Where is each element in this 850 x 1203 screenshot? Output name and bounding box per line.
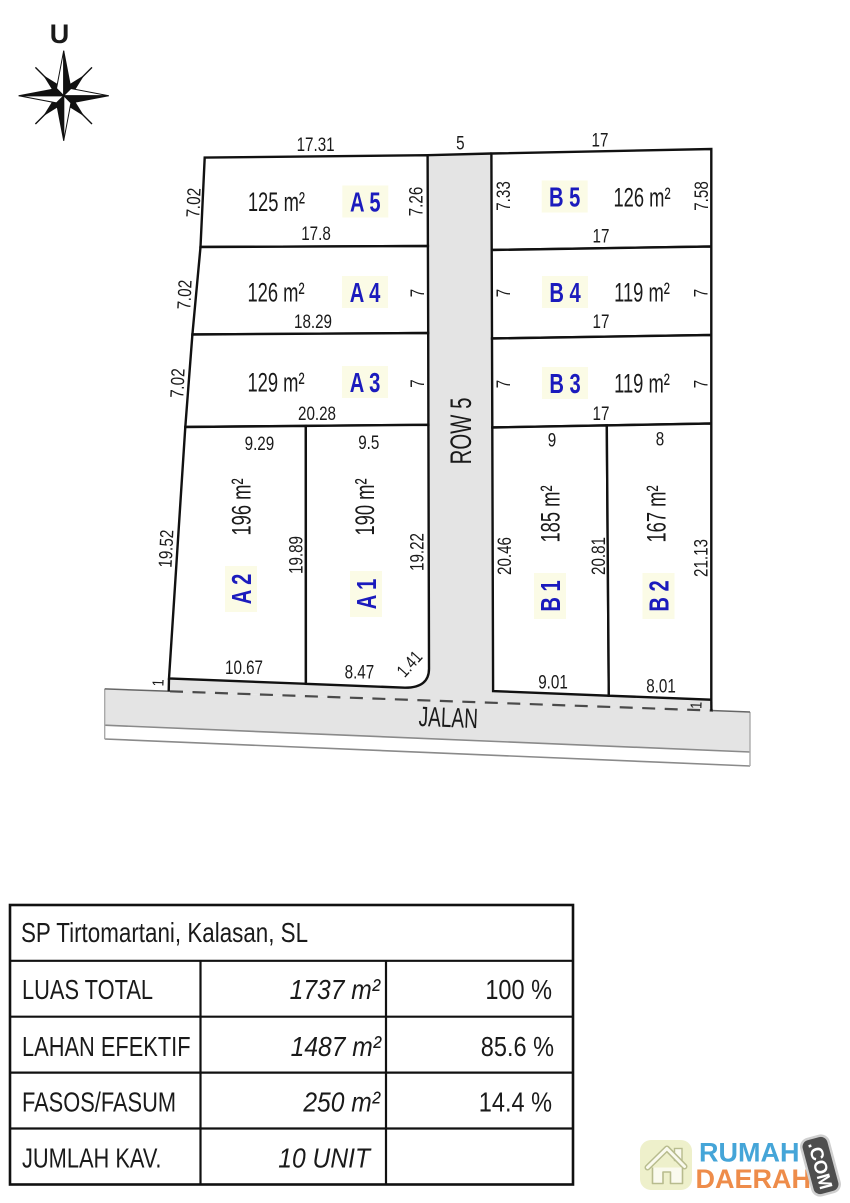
svg-text:19.52: 19.52 xyxy=(154,529,178,568)
svg-text:8.47: 8.47 xyxy=(345,661,375,683)
svg-text:7.02: 7.02 xyxy=(173,279,196,310)
svg-text:20.81: 20.81 xyxy=(588,537,610,575)
svg-text:125 m²: 125 m² xyxy=(248,186,305,216)
svg-text:7: 7 xyxy=(690,289,712,297)
svg-text:1: 1 xyxy=(150,679,168,687)
svg-text:RUMAH: RUMAH xyxy=(699,1138,800,1168)
svg-text:10 UNIT: 10 UNIT xyxy=(278,1142,371,1174)
svg-text:JUMLAH KAV.: JUMLAH KAV. xyxy=(22,1143,162,1174)
svg-text:A 5: A 5 xyxy=(350,187,381,218)
svg-text:7.26: 7.26 xyxy=(405,187,427,217)
svg-text:14.4 %: 14.4 % xyxy=(479,1088,552,1118)
svg-text:A 1: A 1 xyxy=(352,579,383,610)
svg-text:7.02: 7.02 xyxy=(182,187,205,218)
svg-text:B 3: B 3 xyxy=(549,369,580,400)
svg-text:7.02: 7.02 xyxy=(166,368,189,399)
svg-text:7: 7 xyxy=(492,289,514,297)
svg-text:9.5: 9.5 xyxy=(358,431,379,453)
svg-text:10.67: 10.67 xyxy=(225,656,263,678)
svg-text:17: 17 xyxy=(593,402,610,424)
svg-text:7: 7 xyxy=(492,380,514,388)
svg-text:129 m²: 129 m² xyxy=(247,367,304,397)
svg-text:20.28: 20.28 xyxy=(298,402,336,424)
svg-text:LAHAN EFEKTIF: LAHAN EFEKTIF xyxy=(22,1031,191,1062)
svg-text:185 m²: 185 m² xyxy=(535,485,565,542)
svg-text:119 m²: 119 m² xyxy=(614,277,670,307)
svg-text:SP Tirtomartani, Kalasan, SL: SP Tirtomartani, Kalasan, SL xyxy=(21,918,308,949)
svg-text:DAERAH: DAERAH xyxy=(696,1164,812,1194)
svg-text:A 3: A 3 xyxy=(350,368,381,399)
svg-text:1487 m²: 1487 m² xyxy=(291,1031,382,1063)
svg-text:7.33: 7.33 xyxy=(492,181,514,211)
svg-text:A 4: A 4 xyxy=(350,278,381,309)
svg-text:21.13: 21.13 xyxy=(690,539,712,577)
svg-text:B 1: B 1 xyxy=(536,580,567,611)
svg-text:190 m²: 190 m² xyxy=(350,478,380,535)
svg-text:17: 17 xyxy=(593,310,610,332)
svg-text:196 m²: 196 m² xyxy=(226,478,256,535)
svg-text:17: 17 xyxy=(592,129,609,151)
svg-text:19.22: 19.22 xyxy=(406,533,428,571)
svg-text:FASOS/FASUM: FASOS/FASUM xyxy=(22,1087,176,1118)
svg-text:JALAN: JALAN xyxy=(418,701,478,735)
svg-text:B 4: B 4 xyxy=(549,278,581,309)
svg-text:9.01: 9.01 xyxy=(538,671,568,693)
svg-text:126 m²: 126 m² xyxy=(247,277,304,307)
svg-text:85.6 %: 85.6 % xyxy=(481,1032,554,1062)
svg-text:7: 7 xyxy=(406,289,428,297)
svg-text:1: 1 xyxy=(688,701,706,709)
svg-text:7: 7 xyxy=(406,379,428,387)
svg-text:U: U xyxy=(50,19,70,49)
svg-text:17.31: 17.31 xyxy=(297,133,335,155)
svg-text:167 m²: 167 m² xyxy=(641,485,671,542)
svg-text:250 m²: 250 m² xyxy=(302,1086,381,1118)
svg-text:17: 17 xyxy=(593,225,610,247)
svg-text:100 %: 100 % xyxy=(485,975,552,1005)
svg-text:9.29: 9.29 xyxy=(245,432,275,454)
svg-text:B 2: B 2 xyxy=(644,580,675,611)
svg-text:8.01: 8.01 xyxy=(646,675,676,697)
svg-text:126 m²: 126 m² xyxy=(613,182,670,212)
svg-text:18.29: 18.29 xyxy=(294,310,332,332)
svg-text:LUAS TOTAL: LUAS TOTAL xyxy=(22,974,153,1005)
svg-text:8: 8 xyxy=(656,428,664,450)
svg-text:17.8: 17.8 xyxy=(301,222,331,244)
svg-text:19.89: 19.89 xyxy=(285,536,307,574)
svg-text:119 m²: 119 m² xyxy=(614,368,670,398)
svg-text:A 2: A 2 xyxy=(227,574,258,605)
svg-text:20.46: 20.46 xyxy=(493,537,515,575)
svg-text:5: 5 xyxy=(456,132,464,154)
svg-text:1737 m²: 1737 m² xyxy=(290,974,381,1006)
svg-text:ROW 5: ROW 5 xyxy=(445,398,478,465)
svg-text:B 5: B 5 xyxy=(549,182,580,213)
svg-text:7.58: 7.58 xyxy=(690,181,712,211)
svg-text:7: 7 xyxy=(690,380,712,388)
svg-text:9: 9 xyxy=(548,429,556,451)
